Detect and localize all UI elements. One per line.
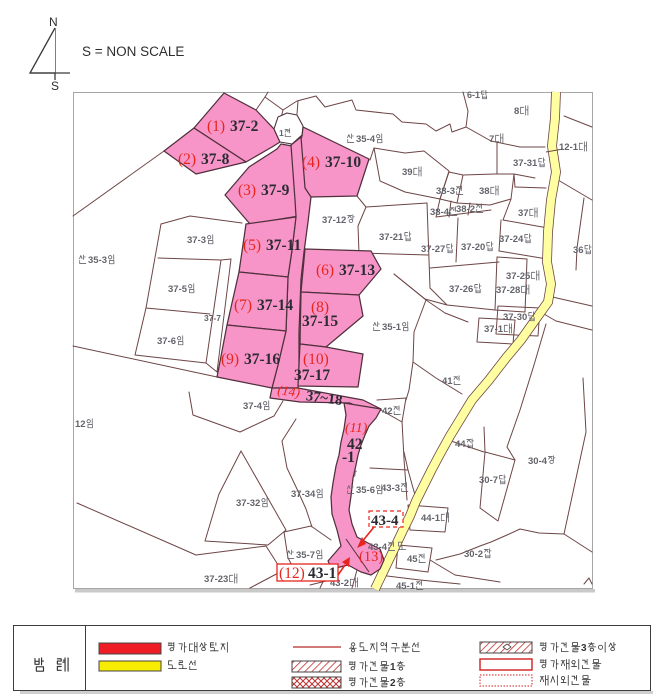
svg-text:44-1: 44-1 (421, 513, 441, 524)
svg-text:-1: -1 (342, 449, 355, 466)
svg-text:37-12: 37-12 (322, 215, 346, 226)
svg-text:37-25: 37-25 (506, 271, 531, 282)
svg-text:37-24: 37-24 (499, 234, 524, 245)
svg-text:S = NON SCALE: S = NON SCALE (82, 44, 184, 59)
svg-text:1: 1 (279, 128, 284, 138)
svg-text:37-3: 37-3 (187, 235, 206, 246)
svg-text:37-15: 37-15 (302, 313, 338, 330)
svg-text:30-7: 30-7 (479, 475, 498, 486)
svg-text:43-1: 43-1 (308, 565, 336, 582)
svg-text:37-26: 37-26 (449, 284, 473, 295)
svg-text:6-1: 6-1 (467, 90, 480, 100)
svg-text:(11): (11) (345, 421, 368, 436)
svg-text:(2): (2) (178, 151, 196, 168)
svg-text:43-4: 43-4 (371, 513, 399, 529)
svg-text:37-28: 37-28 (496, 285, 520, 296)
svg-text:N: N (49, 15, 58, 29)
svg-text:37-14: 37-14 (257, 297, 293, 314)
svg-text:37-5: 37-5 (168, 284, 188, 295)
svg-text:12-1: 12-1 (559, 142, 579, 153)
svg-text:35-3: 35-3 (88, 255, 107, 266)
svg-text:37-31: 37-31 (513, 158, 538, 169)
svg-text:37: 37 (518, 208, 529, 219)
svg-text:37-13: 37-13 (339, 262, 375, 279)
svg-text:(1): (1) (207, 118, 225, 135)
svg-text:37-16: 37-16 (244, 351, 280, 368)
svg-text:(3): (3) (238, 182, 256, 199)
svg-text:(5): (5) (243, 237, 261, 254)
svg-text:35-1: 35-1 (382, 322, 402, 333)
svg-text:37-32: 37-32 (236, 498, 260, 509)
svg-text:37-2: 37-2 (230, 118, 259, 135)
svg-text:37-4: 37-4 (243, 401, 263, 412)
svg-text:37-34: 37-34 (291, 489, 316, 500)
svg-text:41: 41 (442, 376, 453, 387)
svg-text:2: 2 (390, 678, 396, 689)
svg-text:(9): (9) (221, 351, 239, 368)
svg-text:37-21: 37-21 (379, 232, 404, 243)
svg-text:38-4: 38-4 (430, 207, 450, 218)
svg-text:36: 36 (573, 245, 584, 256)
svg-text:12: 12 (75, 419, 86, 430)
svg-text:35-6: 35-6 (356, 485, 375, 496)
svg-text:45-1: 45-1 (396, 581, 416, 592)
svg-text:37-9: 37-9 (261, 182, 290, 199)
svg-text:(6): (6) (316, 262, 334, 279)
svg-text:35-4: 35-4 (356, 134, 376, 145)
svg-text:39: 39 (402, 167, 413, 178)
svg-text:37-6: 37-6 (157, 336, 176, 347)
svg-text:37-8: 37-8 (201, 151, 230, 168)
svg-text:S: S (51, 79, 59, 93)
svg-text:35-7: 35-7 (296, 550, 315, 561)
svg-text:30-4: 30-4 (528, 456, 548, 467)
svg-text:37-11: 37-11 (266, 237, 301, 254)
svg-text:37-20: 37-20 (461, 242, 485, 253)
svg-text:37-17: 37-17 (294, 367, 330, 384)
svg-text:30-2: 30-2 (464, 549, 483, 560)
svg-text:3: 3 (581, 643, 587, 654)
svg-text:(7): (7) (234, 297, 252, 314)
svg-text:(14): (14) (277, 382, 302, 400)
svg-text:37-1: 37-1 (484, 324, 504, 335)
svg-text:43-3: 43-3 (381, 483, 400, 494)
svg-text:(12): (12) (279, 565, 305, 582)
svg-text:8: 8 (514, 106, 519, 117)
svg-text:1: 1 (390, 662, 396, 673)
svg-text:(13): (13) (359, 549, 383, 565)
svg-text:37-30: 37-30 (503, 312, 527, 323)
svg-text:(10): (10) (303, 351, 329, 368)
svg-text:37-23: 37-23 (204, 574, 228, 585)
svg-text:42: 42 (382, 406, 393, 417)
svg-text:(4): (4) (302, 154, 320, 171)
svg-text:44: 44 (455, 439, 466, 450)
svg-text:38-3: 38-3 (436, 186, 455, 197)
svg-text:7: 7 (489, 134, 494, 145)
svg-text:38: 38 (479, 186, 490, 197)
svg-text:45: 45 (407, 554, 418, 565)
svg-text:37-7: 37-7 (204, 313, 221, 323)
svg-text:37-10: 37-10 (325, 154, 361, 171)
svg-text:37-27: 37-27 (421, 244, 445, 255)
svg-text:38-2: 38-2 (456, 204, 475, 215)
